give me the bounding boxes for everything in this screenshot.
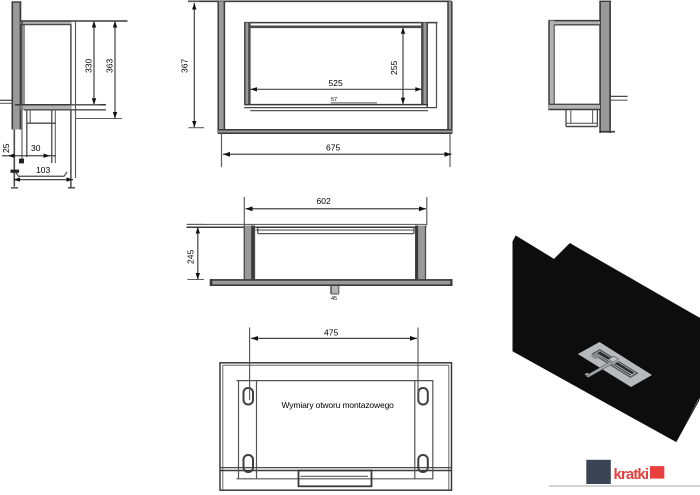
svg-text:255: 255 (389, 61, 399, 75)
svg-text:245: 245 (186, 250, 196, 264)
svg-text:Wymiary otworu montazowego: Wymiary otworu montazowego (282, 400, 395, 410)
svg-text:363: 363 (105, 59, 115, 73)
svg-text:45: 45 (331, 296, 337, 302)
svg-text:330: 330 (84, 59, 94, 73)
svg-text:675: 675 (326, 143, 340, 153)
svg-text:367: 367 (180, 59, 190, 73)
svg-text:30: 30 (31, 143, 41, 153)
svg-text:103: 103 (36, 165, 50, 175)
svg-text:475: 475 (324, 328, 338, 338)
svg-text:25: 25 (1, 143, 11, 153)
svg-text:525: 525 (329, 78, 343, 88)
svg-text:kratki: kratki (614, 466, 649, 483)
svg-text:602: 602 (317, 196, 331, 206)
svg-text:57: 57 (331, 97, 337, 103)
